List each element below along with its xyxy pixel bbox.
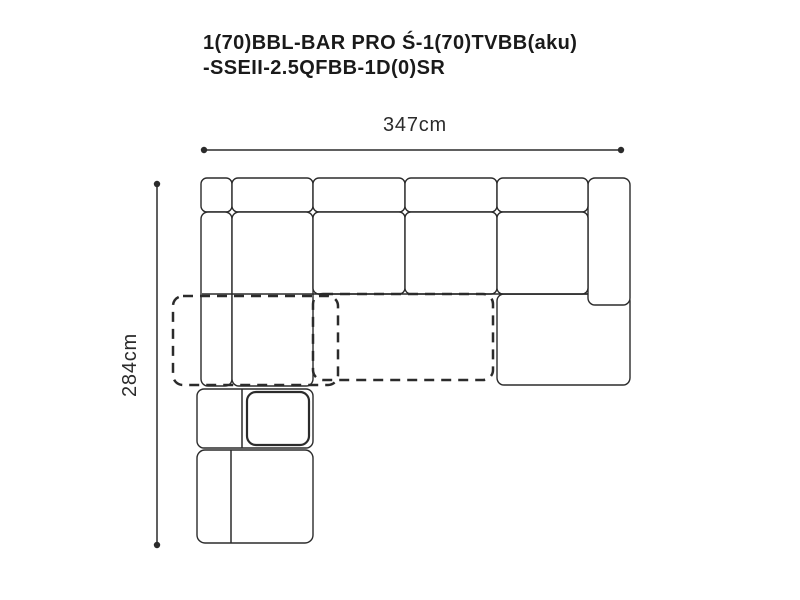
bar-tray: [247, 392, 309, 445]
height-dimension-end-dot-top: [154, 181, 160, 187]
sofa-diagram: 347cm 284cm: [0, 0, 800, 600]
right-armrest: [588, 178, 630, 305]
left-armrest: [201, 212, 232, 386]
seat-cushion-4: [497, 212, 588, 294]
seat-cushion-3: [405, 212, 497, 294]
width-dimension-label: 347cm: [383, 114, 447, 136]
foldout-bed-dashed-outline: [313, 294, 493, 380]
back-cushion-3: [405, 178, 497, 212]
back-cushion-1: [232, 178, 313, 212]
seat-cushion-2: [313, 212, 405, 294]
back-cushion-4: [497, 178, 588, 212]
back-cushion-2: [313, 178, 405, 212]
width-dimension: 347cm: [201, 114, 624, 153]
height-dimension-end-dot-bottom: [154, 542, 160, 548]
sofa-outline: [173, 178, 630, 543]
height-dimension-label: 284cm: [119, 333, 141, 397]
width-dimension-end-dot-right: [618, 147, 624, 153]
bottom-seat-module: [197, 450, 313, 543]
height-dimension: 284cm: [119, 181, 160, 548]
width-dimension-end-dot-left: [201, 147, 207, 153]
left-armrest-back-section: [201, 178, 232, 212]
furniture-dimension-diagram: 1(70)BBL-BAR PRO Ś-1(70)TVBB(aku) -SSEII…: [0, 0, 800, 600]
chaise-seat: [232, 212, 313, 386]
corner-seat: [497, 294, 630, 385]
